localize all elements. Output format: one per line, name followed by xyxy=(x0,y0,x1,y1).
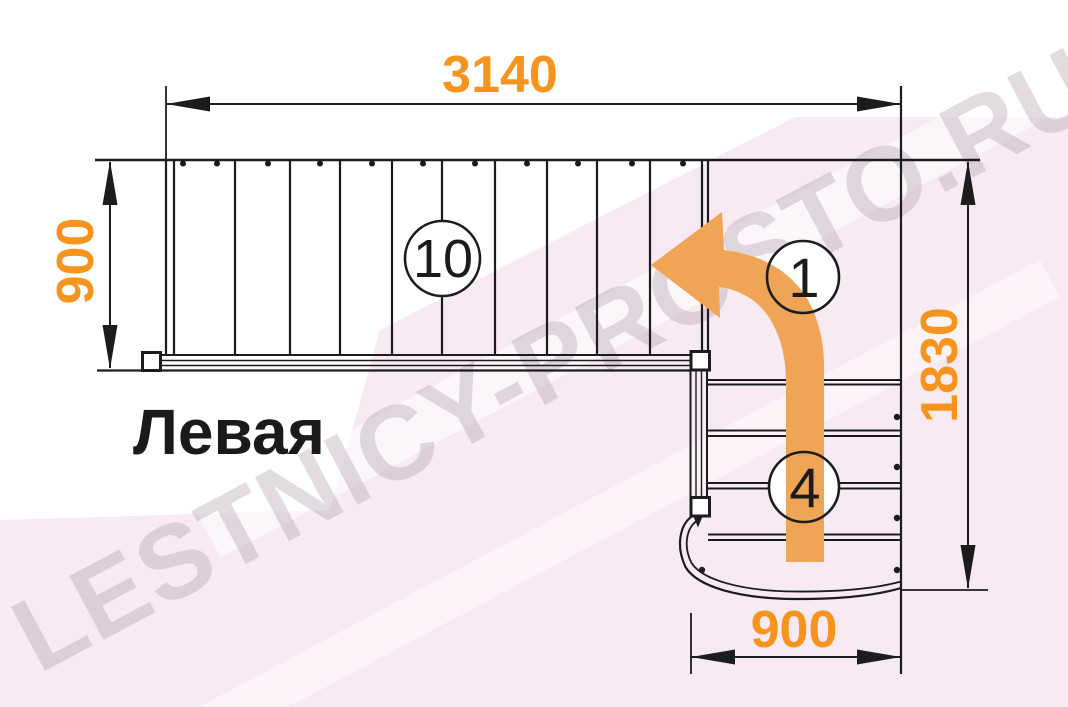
staircase-plan-canvas: LESTNICY-PROSTO.RU xyxy=(0,0,1068,707)
lower-stringer xyxy=(691,370,708,497)
newel-post-left xyxy=(143,353,161,371)
upper-flight-step-count: 10 xyxy=(413,232,473,286)
dimension-right-depth: 1830 xyxy=(914,307,966,423)
upper-stringer xyxy=(97,355,692,371)
variant-title: Левая xyxy=(133,400,325,464)
staircase-drawing xyxy=(0,0,1068,707)
lower-flight-step-count: 4 xyxy=(789,460,820,516)
dimension-left-width: 900 xyxy=(50,218,102,305)
stair-structure xyxy=(95,86,980,674)
dimension-bottom-width: 900 xyxy=(751,604,838,656)
newel-post-bottom xyxy=(691,498,710,517)
newel-post-corner xyxy=(691,352,710,371)
landing-number: 1 xyxy=(788,250,819,306)
dimension-top-width: 3140 xyxy=(442,49,558,101)
